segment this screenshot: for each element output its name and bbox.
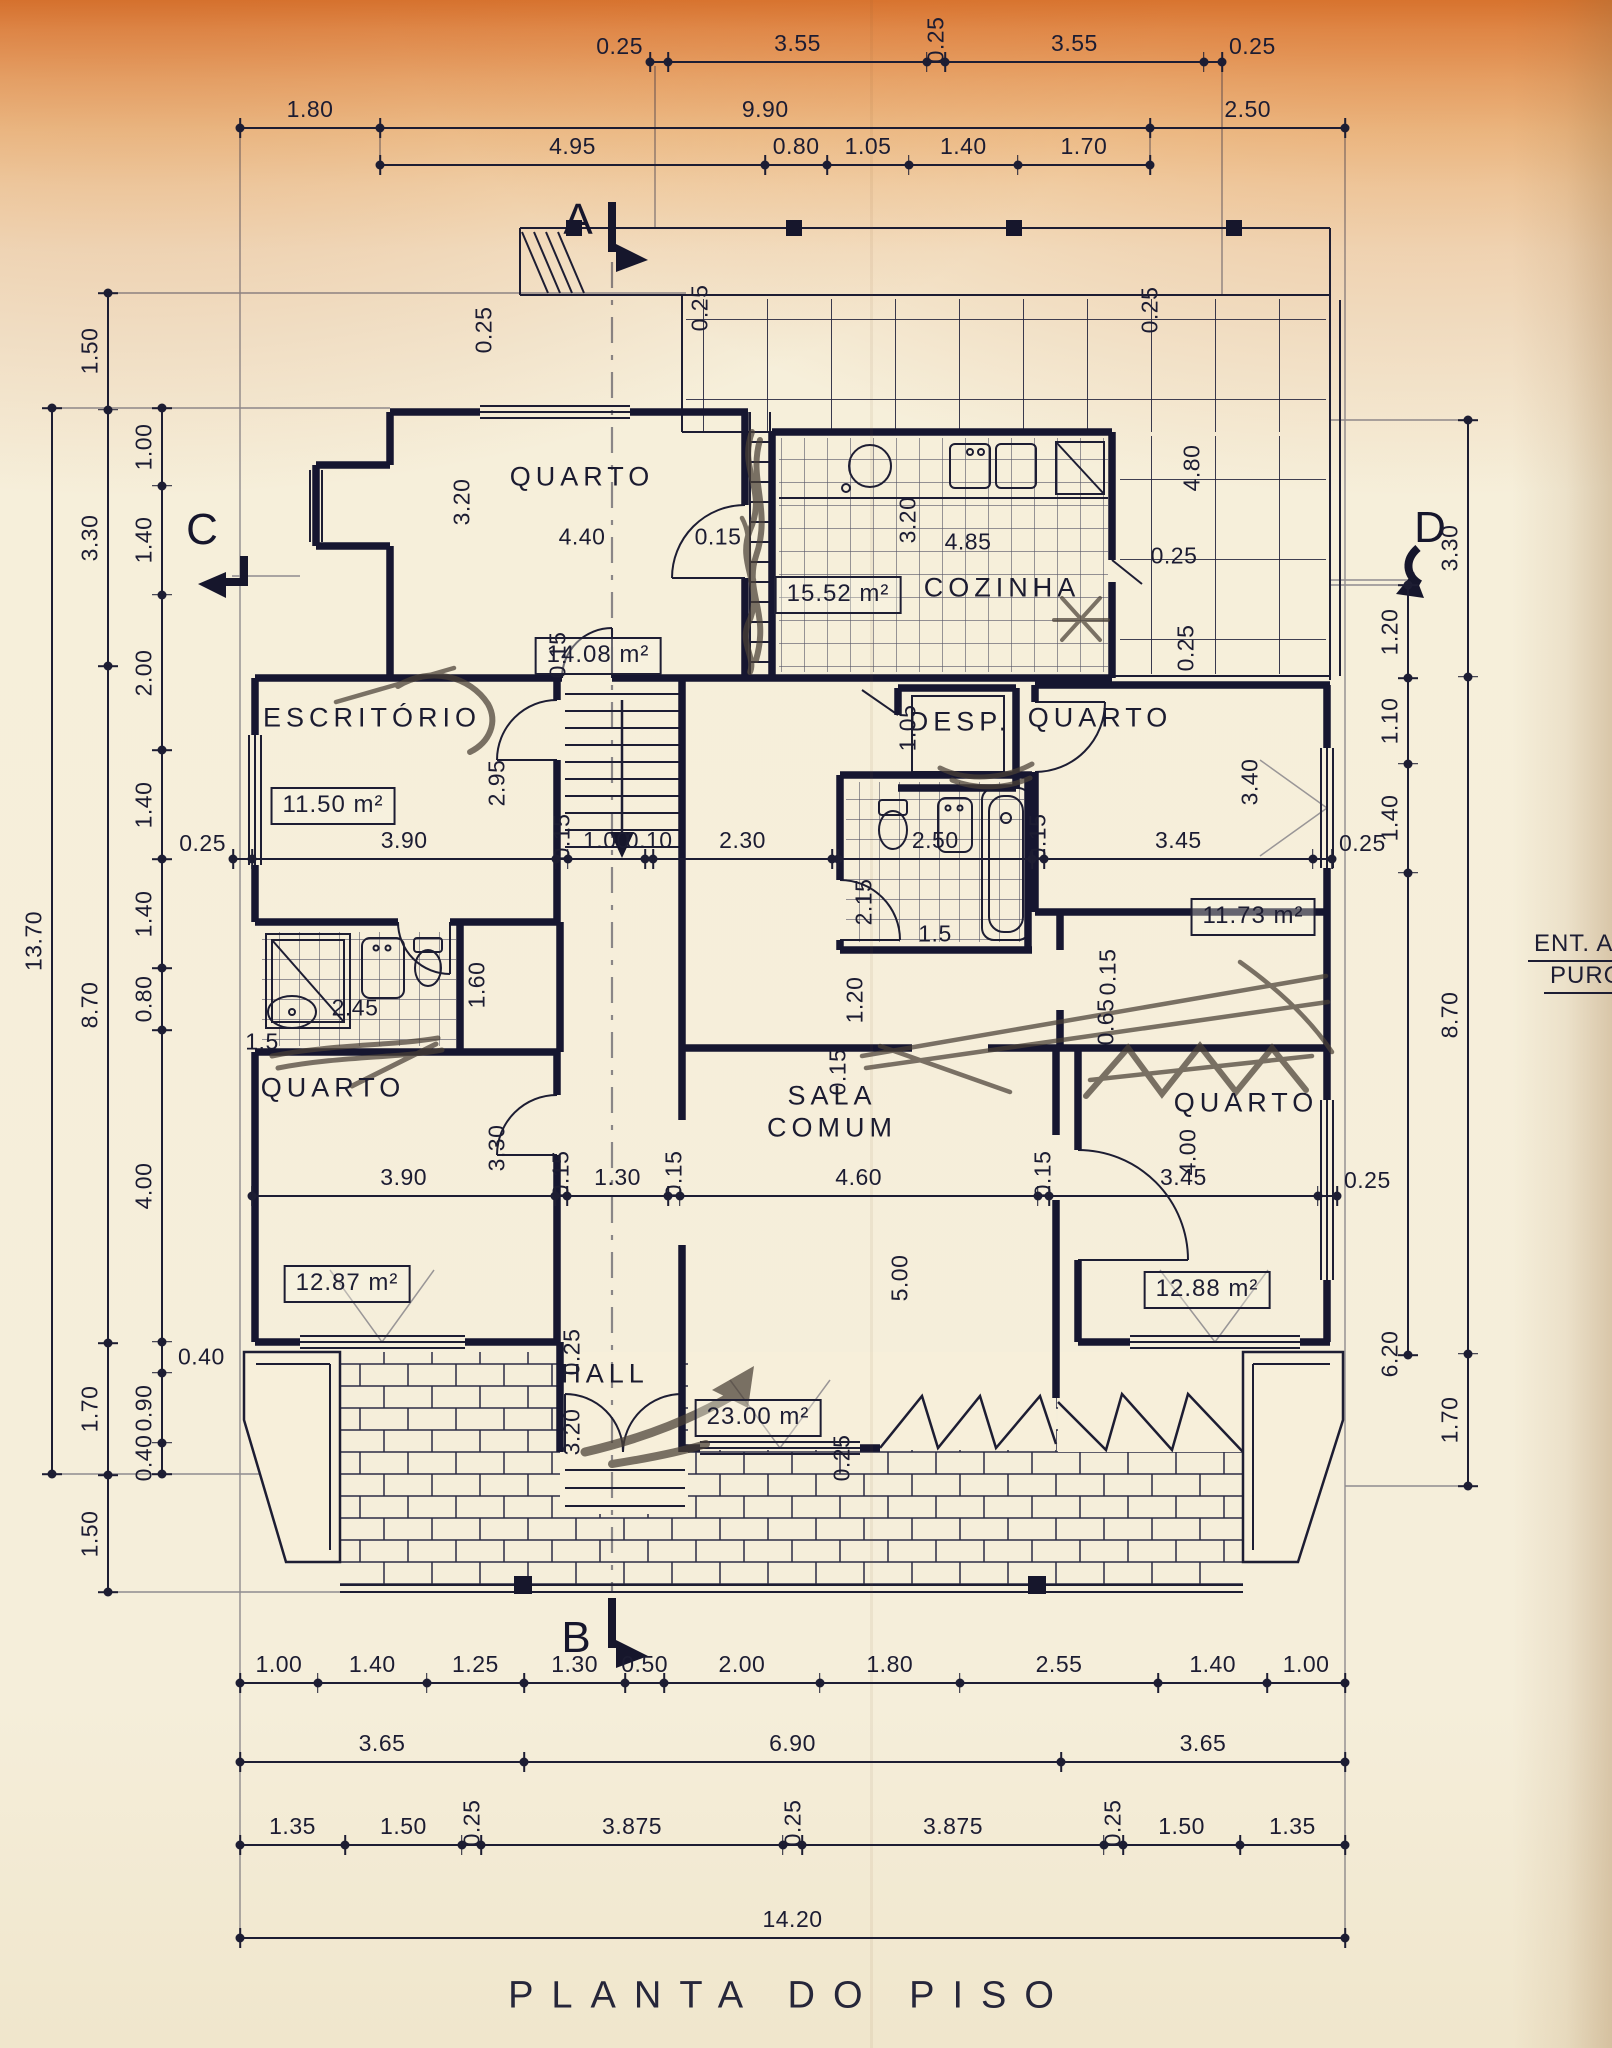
dim-label: 1.20 (1377, 608, 1404, 655)
dim-tick (1266, 1673, 1268, 1693)
dim-tick (317, 1673, 319, 1693)
dim-label: 2.30 (719, 827, 766, 854)
dim-label: 0.25 (559, 1329, 586, 1376)
dim-tick (567, 849, 569, 869)
dim-tick (152, 1372, 172, 1374)
dim-tick (667, 52, 669, 72)
dim-label: 1.00 (131, 424, 158, 471)
dim-tick (1398, 678, 1418, 680)
dim-label: 0.25 (596, 33, 643, 60)
dim-tick (1336, 1186, 1338, 1206)
dim-tick (679, 1186, 681, 1206)
dim-label: 3.90 (381, 827, 428, 854)
dim-label: 0.15 (1095, 949, 1122, 996)
dim-tick (239, 1752, 241, 1772)
dim-line (233, 858, 832, 860)
dim-tick (239, 1835, 241, 1855)
dim-label: 4.40 (559, 524, 606, 551)
dim-label: 1.35 (269, 1813, 316, 1840)
dim-label: 2.45 (332, 995, 379, 1022)
dim-tick (837, 849, 839, 869)
dim-label: 0.65 (1093, 999, 1120, 1046)
dim-label: 1.40 (940, 133, 987, 160)
dim-tick (652, 849, 654, 869)
dim-tick (379, 155, 381, 175)
dim-tick (1150, 118, 1152, 138)
dim-tick (426, 1673, 428, 1693)
dim-tick (251, 1186, 253, 1206)
dim-label: 6.20 (1377, 1330, 1404, 1377)
dim-label: 14.20 (762, 1906, 822, 1933)
dim-tick (480, 1835, 482, 1855)
dim-tick (239, 118, 241, 138)
dim-label: 2.15 (851, 879, 878, 926)
dim-label: 1.10 (1377, 698, 1404, 745)
dim-tick (1458, 1353, 1478, 1355)
dim-label: 4.00 (1175, 1129, 1202, 1176)
dim-label: 1.05 (845, 133, 892, 160)
dim-label: 4.80 (1179, 445, 1206, 492)
dim-label: 1.40 (131, 890, 158, 937)
dim-label: 0.50 (621, 1651, 668, 1678)
dim-label: 1.50 (77, 328, 104, 375)
dim-label: 3.875 (923, 1813, 983, 1840)
dim-label: 0.10 (626, 827, 673, 854)
dim-tick (1149, 155, 1151, 175)
dim-tick (1221, 52, 1223, 72)
dim-tick (908, 155, 910, 175)
dimension-layer: 0.253.550.253.550.251.809.902.504.950.80… (0, 0, 1612, 2048)
dim-label: 1.40 (349, 1651, 396, 1678)
dim-tick (944, 52, 946, 72)
dim-label: 0.25 (1344, 1167, 1391, 1194)
dim-tick (98, 409, 118, 411)
dim-tick (1048, 1186, 1050, 1206)
dim-label: 3.20 (559, 1409, 586, 1456)
dim-tick (98, 1342, 118, 1344)
dim-label: 1.60 (464, 962, 491, 1009)
dim-label: 3.30 (77, 515, 104, 562)
dim-tick (1344, 1928, 1346, 1948)
dim-label: 3.875 (602, 1813, 662, 1840)
dim-label: 0.15 (825, 1049, 852, 1096)
dim-tick (239, 1673, 241, 1693)
dim-label: 1.40 (1377, 795, 1404, 842)
dim-tick (152, 967, 172, 969)
dim-label: 3.65 (359, 1730, 406, 1757)
dim-line (240, 1761, 1345, 1763)
dim-line (252, 1195, 1337, 1197)
dim-tick (1060, 1752, 1062, 1772)
dim-label: 1.40 (131, 517, 158, 564)
dim-line (161, 408, 163, 1474)
dim-line (51, 408, 53, 1474)
dim-tick (1043, 849, 1045, 869)
dim-tick (379, 118, 381, 138)
dim-label: 0.90 (131, 1384, 158, 1431)
dim-label: 1.40 (1189, 1651, 1236, 1678)
dim-label: 0.25 (179, 830, 226, 857)
dim-tick (1344, 1835, 1346, 1855)
dim-label: 2.50 (912, 827, 959, 854)
dim-label: 3.20 (449, 479, 476, 526)
dim-line (240, 1937, 1345, 1939)
dim-label: 1.05 (895, 705, 922, 752)
dim-label: 3.30 (1437, 525, 1464, 572)
dim-tick (764, 155, 766, 175)
dim-tick (1458, 419, 1478, 421)
blueprint-page: A B C D QUARTO COZINHA ESCRITÓRIO DESP. … (0, 0, 1612, 2048)
dim-tick (152, 1341, 172, 1343)
dim-label: 0.80 (131, 976, 158, 1023)
dim-tick (1398, 584, 1418, 586)
dim-tick (344, 1835, 346, 1855)
dim-tick (566, 1186, 568, 1206)
dim-tick (1122, 1835, 1124, 1855)
dim-label: 1.5 (918, 921, 951, 948)
dim-tick (98, 666, 118, 668)
dim-tick (523, 1752, 525, 1772)
dim-tick (1344, 1673, 1346, 1693)
dim-label: 1.20 (842, 977, 869, 1024)
dim-tick (1317, 1186, 1319, 1206)
dim-label: 1.00 (1283, 1651, 1330, 1678)
dim-tick (1203, 52, 1205, 72)
dim-label: 1.70 (1060, 133, 1107, 160)
dim-tick (1398, 763, 1418, 765)
dim-label: 9.90 (742, 96, 789, 123)
dim-label: 5.00 (887, 1255, 914, 1302)
dim-tick (1344, 118, 1346, 138)
dim-label: 0.15 (548, 814, 575, 861)
dim-tick (98, 292, 118, 294)
dim-label: 1.30 (594, 1164, 641, 1191)
dim-label: 1.50 (380, 1813, 427, 1840)
dim-tick (152, 859, 172, 861)
dim-tick (98, 1475, 118, 1477)
dim-label: 3.55 (1051, 30, 1098, 57)
dim-tick (152, 485, 172, 487)
dim-label: 1.5 (245, 1029, 278, 1056)
dim-tick (152, 1030, 172, 1032)
dim-line (838, 858, 1332, 860)
dim-label: 1.80 (866, 1651, 913, 1678)
dim-tick (663, 1673, 665, 1693)
dim-label: 0.25 (471, 307, 498, 354)
dim-tick (649, 52, 651, 72)
dim-label: 1.40 (131, 781, 158, 828)
dim-label: 1.50 (1158, 1813, 1205, 1840)
dim-line (240, 127, 1345, 129)
dim-tick (1017, 155, 1019, 175)
dim-label: 3.90 (380, 1164, 427, 1191)
dim-label: 2.00 (719, 1651, 766, 1678)
dim-tick (1398, 872, 1418, 874)
dim-label: 2.50 (1224, 96, 1271, 123)
dim-label: 0.25 (1151, 543, 1198, 570)
dim-label: 1.50 (77, 1510, 104, 1557)
dim-tick (1157, 1673, 1159, 1693)
dim-tick (42, 407, 62, 409)
dim-tick (98, 1591, 118, 1593)
dim-line (107, 293, 109, 1592)
dim-label: 0.15 (1030, 1151, 1057, 1198)
dim-tick (152, 750, 172, 752)
dim-label: 1.70 (77, 1386, 104, 1433)
dim-tick (959, 1673, 961, 1693)
dim-tick (252, 849, 254, 869)
dim-label: 0.15 (695, 524, 742, 551)
dim-label: 1.00 (256, 1651, 303, 1678)
dim-tick (819, 1673, 821, 1693)
dim-tick (232, 849, 234, 869)
dim-tick (1239, 1835, 1241, 1855)
dim-tick (152, 594, 172, 596)
dim-tick (801, 1835, 803, 1855)
dim-tick (1458, 676, 1478, 678)
dim-label: 3.30 (484, 1125, 511, 1172)
dim-label: 8.70 (1437, 992, 1464, 1039)
dim-label: 1.80 (287, 96, 334, 123)
dim-label: 0.25 (1229, 33, 1276, 60)
dim-line (1407, 585, 1409, 1355)
dim-label: 3.45 (1155, 827, 1202, 854)
dim-tick (1312, 849, 1314, 869)
dim-line (1467, 420, 1469, 1486)
dim-label: 13.70 (21, 911, 48, 971)
dim-line (240, 1682, 1345, 1684)
dim-label: 2.95 (484, 760, 511, 807)
dim-label: 2.00 (131, 649, 158, 696)
dim-tick (826, 155, 828, 175)
dim-label: 3.55 (774, 30, 821, 57)
dim-label: 0.25 (687, 285, 714, 332)
dim-tick (1331, 849, 1333, 869)
dim-label: 0.15 (660, 1151, 687, 1198)
dim-tick (152, 407, 172, 409)
dim-label: 3.65 (1180, 1730, 1227, 1757)
dim-label: 0.15 (545, 632, 572, 679)
dim-label: 0.15 (1025, 814, 1052, 861)
dim-label: 1.00 (583, 827, 630, 854)
dim-tick (42, 1473, 62, 1475)
dim-tick (239, 1928, 241, 1948)
dim-label: 0.25 (1137, 287, 1164, 334)
dim-tick (523, 1673, 525, 1693)
dim-label: 4.00 (131, 1163, 158, 1210)
dim-label: 6.90 (769, 1730, 816, 1757)
dim-tick (1344, 1752, 1346, 1772)
dim-label: 0.80 (773, 133, 820, 160)
dim-label: 3.20 (895, 497, 922, 544)
dim-label: 8.70 (77, 981, 104, 1028)
dim-label: 0.40 (178, 1344, 225, 1371)
dim-label: 2.55 (1036, 1651, 1083, 1678)
dim-label: 4.95 (549, 133, 596, 160)
dim-tick (1458, 1485, 1478, 1487)
dim-label: 0.25 (829, 1435, 856, 1482)
dim-label: 4.85 (945, 529, 992, 556)
dim-label: 0.25 (1173, 625, 1200, 672)
dim-label: 3.40 (1237, 759, 1264, 806)
dim-label: 0.15 (548, 1151, 575, 1198)
dim-label: 4.60 (835, 1164, 882, 1191)
dim-label: 0.40 (131, 1435, 158, 1482)
dim-label: 1.25 (452, 1651, 499, 1678)
dim-label: 1.35 (1269, 1813, 1316, 1840)
dim-label: 1.30 (551, 1651, 598, 1678)
dim-label: 1.70 (1437, 1396, 1464, 1443)
